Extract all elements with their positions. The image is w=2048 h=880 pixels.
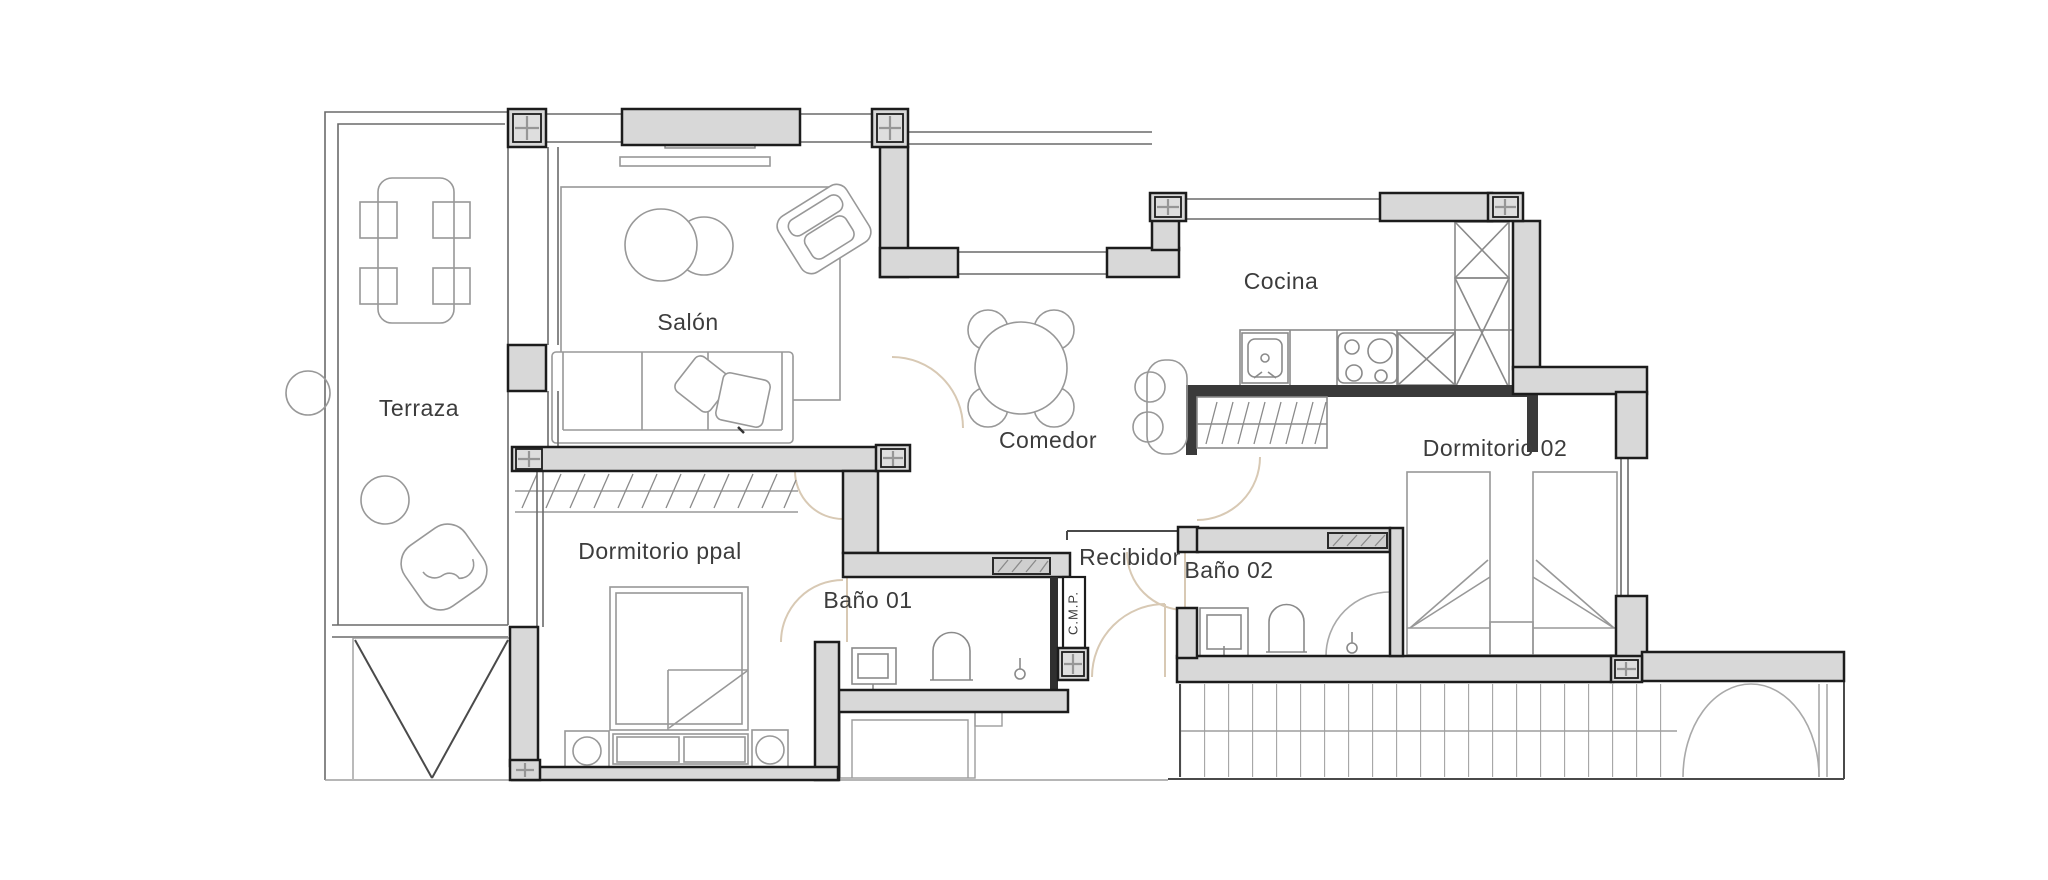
door-arc-dormitorio-ppal bbox=[795, 471, 843, 519]
bathroom2-toilet bbox=[1266, 605, 1307, 653]
bathroom2-sink bbox=[1200, 608, 1248, 656]
wall-segment bbox=[510, 627, 538, 766]
hatched-cabinet bbox=[993, 558, 1050, 574]
sofa bbox=[552, 352, 793, 443]
window-dormitorio-02 bbox=[1621, 457, 1628, 596]
room-label-bano-02: Baño 02 bbox=[1184, 557, 1273, 583]
nightstand bbox=[1490, 622, 1533, 655]
bar-bench bbox=[1147, 360, 1187, 454]
bar-stool bbox=[1133, 412, 1163, 442]
door-arc-salon-hall bbox=[892, 357, 963, 428]
wall-segment bbox=[512, 767, 838, 780]
burner bbox=[1345, 340, 1359, 354]
room-label-comedor: Comedor bbox=[999, 427, 1097, 453]
bed-pillow bbox=[617, 737, 679, 762]
bathroom1-shower-tap bbox=[1015, 658, 1025, 679]
coffee-table-large bbox=[625, 209, 697, 281]
tall-cabinet-x bbox=[1455, 222, 1509, 388]
window-cocina bbox=[1186, 199, 1380, 219]
floor-divider bbox=[1067, 531, 1177, 540]
wall-segment bbox=[815, 642, 839, 780]
column-marker bbox=[510, 760, 540, 780]
room-terraza bbox=[286, 112, 512, 780]
floor-plan-page: Terraza Salón Comedor Cocina Dormitorio … bbox=[0, 0, 2048, 880]
wall-segment bbox=[1178, 527, 1198, 552]
wall-partition bbox=[1390, 528, 1403, 656]
dining-table bbox=[975, 322, 1067, 414]
hatched-cabinet bbox=[1328, 533, 1387, 548]
shower-screen-arc bbox=[1326, 592, 1390, 656]
wall-segment bbox=[838, 690, 1068, 712]
window-comedor bbox=[958, 252, 1107, 274]
tv-shelf bbox=[620, 157, 770, 166]
room-label-recibidor: Recibidor bbox=[1079, 544, 1181, 570]
column-marker bbox=[1150, 193, 1186, 221]
floor-plan-svg: Terraza Salón Comedor Cocina Dormitorio … bbox=[0, 0, 2048, 880]
terrace-chair bbox=[433, 202, 470, 238]
bathroom2-shower bbox=[1326, 592, 1390, 656]
bar-counter-hatch bbox=[1206, 402, 1326, 444]
bathroom1-sink bbox=[852, 648, 896, 694]
room-label-salon: Salón bbox=[657, 309, 718, 335]
room-bano-02 bbox=[1200, 592, 1390, 656]
nightstand bbox=[752, 730, 788, 769]
stove bbox=[1338, 333, 1397, 383]
column-marker bbox=[872, 109, 908, 147]
burner bbox=[1375, 370, 1387, 382]
facade-line bbox=[908, 132, 1152, 144]
nightstand bbox=[565, 731, 609, 771]
room-label-dormitorio-02: Dormitorio 02 bbox=[1423, 435, 1568, 461]
headboard bbox=[613, 734, 748, 764]
sofa-pillow bbox=[715, 372, 772, 429]
kitchen-cabinet-x bbox=[1398, 333, 1455, 385]
bar-stool bbox=[1135, 372, 1165, 402]
terrace-void-marker bbox=[353, 638, 510, 779]
column-marker bbox=[876, 445, 910, 471]
lamp bbox=[573, 737, 601, 765]
double-bed bbox=[610, 587, 748, 764]
room-cocina bbox=[1133, 222, 1538, 455]
room-label-cmp: C.M.P. bbox=[1065, 591, 1080, 635]
kitchen-counter bbox=[1240, 330, 1513, 387]
wardrobe bbox=[515, 474, 798, 512]
room-label-cocina: Cocina bbox=[1244, 268, 1319, 294]
door-arc-entrance bbox=[1092, 604, 1165, 677]
terrace-lounge-chair bbox=[392, 515, 495, 618]
column-marker bbox=[508, 109, 546, 147]
stairwell bbox=[325, 681, 1844, 780]
column-marker bbox=[516, 449, 542, 469]
bed-pillow bbox=[684, 737, 745, 762]
terrace-side-table bbox=[361, 476, 409, 524]
wall-segment bbox=[1107, 248, 1179, 277]
wall-segment bbox=[843, 471, 878, 553]
window-dormitorio-ppal bbox=[537, 471, 543, 627]
wall-segment bbox=[1513, 367, 1647, 394]
column-marker bbox=[1058, 648, 1088, 680]
stair-arch bbox=[1683, 684, 1819, 777]
wall-segment bbox=[512, 447, 878, 471]
wall-segment bbox=[1380, 193, 1492, 221]
room-dormitorio-ppal bbox=[515, 474, 798, 771]
terrace-chair bbox=[433, 268, 470, 304]
lamp bbox=[756, 736, 784, 764]
wall-segment bbox=[1513, 221, 1540, 369]
bathroom1-toilet bbox=[930, 633, 973, 681]
terrace-plant bbox=[286, 371, 330, 415]
wall-segment bbox=[1616, 596, 1647, 657]
outdoor-dining-table bbox=[360, 178, 470, 323]
wall-segment bbox=[1177, 656, 1613, 682]
single-bed bbox=[1407, 472, 1490, 655]
wall-segment bbox=[1616, 392, 1647, 458]
column-marker bbox=[1611, 656, 1642, 682]
wall-segment bbox=[508, 345, 546, 391]
room-dormitorio-02 bbox=[1407, 472, 1617, 655]
wall-segment bbox=[1177, 608, 1197, 658]
burner bbox=[1368, 339, 1392, 363]
wall-segment bbox=[622, 109, 800, 145]
terrace-table bbox=[378, 178, 454, 323]
wall-segment bbox=[1642, 652, 1844, 681]
armchair bbox=[773, 180, 876, 278]
room-comedor bbox=[968, 310, 1074, 427]
room-label-terraza: Terraza bbox=[379, 395, 459, 421]
room-label-dormitorio-ppal: Dormitorio ppal bbox=[578, 538, 741, 564]
shower-enclosure bbox=[840, 712, 1002, 778]
column-marker bbox=[1488, 193, 1523, 221]
wall-segment bbox=[1152, 219, 1179, 250]
single-bed bbox=[1533, 472, 1617, 655]
room-salon bbox=[552, 139, 875, 443]
kitchen-sink bbox=[1242, 333, 1288, 383]
wall-segment bbox=[880, 248, 958, 277]
burner bbox=[1346, 365, 1362, 381]
door-arc-kitchen bbox=[1197, 457, 1260, 520]
room-label-bano-01: Baño 01 bbox=[823, 587, 912, 613]
